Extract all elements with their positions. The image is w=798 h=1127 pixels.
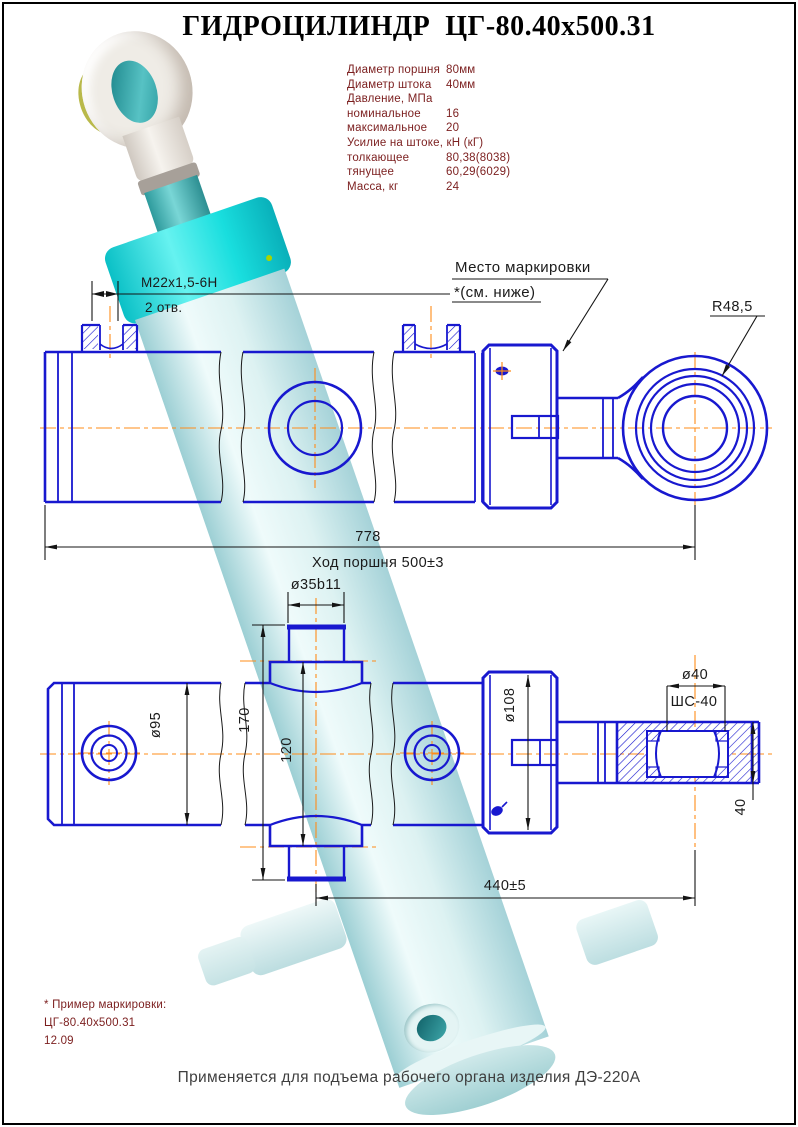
dim-rod-dia: 40 bbox=[733, 799, 749, 816]
marking-note: * Пример маркировки: ЦГ-80.40х500.31 12.… bbox=[44, 996, 166, 1050]
spec-row: Давление, МПа bbox=[347, 92, 510, 107]
dim-cap-dia: ø95 bbox=[148, 712, 164, 738]
spec-value: 24 bbox=[446, 181, 459, 193]
spec-row: тянущее60,29(6029) bbox=[347, 165, 510, 180]
dim-flats-span: 120 bbox=[279, 737, 295, 762]
page-title: ГИДРОЦИЛИНДР ЦГ-80.40х500.31 bbox=[50, 11, 788, 43]
marking-place-label: Место маркировки bbox=[455, 259, 591, 276]
spec-value: 20 bbox=[446, 122, 459, 134]
spec-value: 60,29(6029) bbox=[446, 166, 510, 178]
spec-row: Диаметр штока40мм bbox=[347, 78, 510, 93]
lower-view-linework bbox=[48, 625, 759, 879]
spec-label: максимальное bbox=[347, 121, 446, 136]
spec-label: Усилие на штоке, кН (кГ) bbox=[347, 136, 483, 151]
marking-note-line: * Пример маркировки: bbox=[44, 996, 166, 1014]
spec-row: Усилие на штоке, кН (кГ) bbox=[347, 136, 510, 151]
spec-label: тянущее bbox=[347, 165, 446, 180]
radius-callout: R48,5 bbox=[712, 299, 753, 315]
dim-stroke: Ход поршня 500±3 bbox=[312, 555, 444, 571]
thread-holes-label: 2 отв. bbox=[145, 300, 182, 315]
spec-label: Масса, кг bbox=[347, 180, 446, 195]
dim-trunnion-dia: ø35b11 bbox=[291, 577, 342, 593]
spec-value: 40мм bbox=[446, 79, 475, 91]
spec-label: Диаметр поршня bbox=[347, 63, 446, 78]
spec-label: толкающее bbox=[347, 151, 446, 166]
drawing-sheet: M22x1,5-6H 2 отв. Место маркировки *(см.… bbox=[0, 0, 798, 1127]
spec-label: Диаметр штока bbox=[347, 78, 446, 93]
dim-head-dia: ø108 bbox=[502, 688, 518, 723]
dim-overall-length: 778 bbox=[355, 529, 380, 545]
spec-value: 80мм bbox=[446, 64, 475, 76]
marking-note-line: 12.09 bbox=[44, 1032, 166, 1050]
dim-bearing-type: ШС-40 bbox=[671, 694, 718, 710]
spec-table: Диаметр поршня80мм Диаметр штока40мм Дав… bbox=[347, 63, 510, 194]
marking-see-below-label: *(см. ниже) bbox=[454, 284, 535, 301]
spec-value: 16 bbox=[446, 108, 459, 120]
application-note: Применяется для подъема рабочего органа … bbox=[20, 1069, 798, 1087]
dim-axis-distance: 440±5 bbox=[484, 878, 526, 894]
spec-row: толкающее80,38(8038) bbox=[347, 151, 510, 166]
spec-label: номинальное bbox=[347, 107, 446, 122]
spec-row: Диаметр поршня80мм bbox=[347, 63, 510, 78]
spec-row: номинальное16 bbox=[347, 107, 510, 122]
centerlines bbox=[40, 306, 772, 892]
dim-trunnion-span: 170 bbox=[237, 707, 253, 732]
upper-view-linework bbox=[45, 325, 767, 508]
dim-bearing-bore: ø40 bbox=[682, 667, 708, 683]
spec-row: Масса, кг24 bbox=[347, 180, 510, 195]
spec-value: 80,38(8038) bbox=[446, 152, 510, 164]
spec-row: максимальное20 bbox=[347, 121, 510, 136]
marking-note-line: ЦГ-80.40х500.31 bbox=[44, 1014, 166, 1032]
spec-label: Давление, МПа bbox=[347, 92, 446, 107]
dimension-labels: M22x1,5-6H 2 отв. Место маркировки *(см.… bbox=[141, 259, 753, 894]
dimension-lines bbox=[45, 279, 765, 906]
thread-callout: M22x1,5-6H bbox=[141, 275, 218, 290]
